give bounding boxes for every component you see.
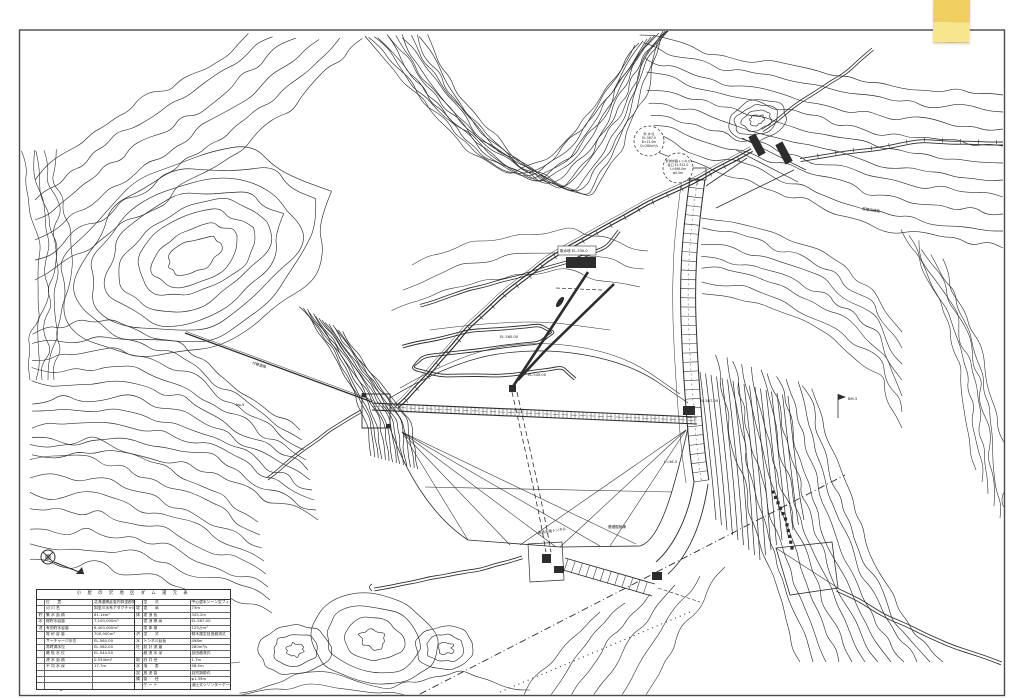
table-cell xyxy=(37,600,45,605)
table-cell: 備 xyxy=(135,677,143,682)
table-cell: 河 川 名 xyxy=(45,606,93,611)
table-cell xyxy=(45,683,93,688)
table-cell xyxy=(37,639,45,644)
plan-label: EL.567.00 xyxy=(700,399,719,403)
plan-label: 基礎掘削線 xyxy=(608,524,626,529)
callout-text: Q=280m³/s xyxy=(640,144,658,148)
table-cell: 平 均 水 深 xyxy=(45,664,93,669)
table-cell: 1.7m xyxy=(191,658,232,663)
table-cell: 0.534km² xyxy=(93,658,134,663)
table-cell xyxy=(135,626,143,631)
table-cell: 水 xyxy=(135,639,143,644)
table-cell: 吐 xyxy=(135,645,143,650)
table-cell: EL.544.50 xyxy=(93,651,134,656)
table-cell: 堤 頂 長 xyxy=(143,613,191,618)
spec-table: 小 屋 の 沢 地 区 ダ ム 諸 元 表 位 置北海道網走管内斜里郡斜里町河 … xyxy=(36,589,231,690)
table-cell: 堤 頂 標 高 xyxy=(143,619,191,624)
plan-label: BM.3 xyxy=(848,397,857,401)
table-cell: 700,000m³ xyxy=(93,632,134,637)
table-cell xyxy=(37,664,45,669)
table-cell: EL.564.00 xyxy=(93,639,134,644)
table-cell: 最 低 水 位 xyxy=(45,651,93,656)
spillway xyxy=(656,133,806,574)
table-cell: 側水路型自由越流式 xyxy=(191,632,232,637)
table-row xyxy=(37,683,134,688)
table-cell: 水 xyxy=(135,664,143,669)
table-cell: 設 xyxy=(135,671,143,676)
table-cell: ゲ ー ト xyxy=(143,683,191,688)
table-row: ゲ ー ト油圧式シリンダーゲート xyxy=(135,683,232,688)
table-cell xyxy=(37,671,45,676)
table-cell: 斜里川水系アタクチャ川 xyxy=(93,606,134,611)
table-cell: 常時満水位 xyxy=(45,645,93,650)
plan-label: No.5 xyxy=(236,403,244,407)
table-cell xyxy=(37,645,45,650)
scanned-drawing-sheet: 洪 水 吐EL.567.0B=12.0mQ=280m³/s仮排水路トンネル呑口 … xyxy=(0,0,1024,698)
table-cell: 油圧式シリンダーゲート xyxy=(191,683,232,688)
table-cell: 設 計 流 量 xyxy=(143,645,191,650)
table-cell xyxy=(37,606,45,611)
table-cell xyxy=(37,658,45,663)
table-cell: 総貯水容量 xyxy=(45,619,93,624)
compass-icon xyxy=(43,552,84,574)
table-cell: 放 流 管 xyxy=(143,671,191,676)
table-cell xyxy=(93,671,134,676)
outlet-works xyxy=(528,542,700,602)
table-cell: 58.5m xyxy=(191,664,232,669)
table-cell: 呑 口 径 xyxy=(143,658,191,663)
table-cell: 自由越流式 xyxy=(191,651,232,656)
table-cell xyxy=(37,677,45,682)
table-cell: 取 xyxy=(135,658,143,663)
table-cell: 堤 xyxy=(135,606,143,611)
table-cell xyxy=(135,683,143,688)
table-cell: 型 式 xyxy=(143,632,191,637)
table-cell xyxy=(93,683,134,688)
intake-penstock xyxy=(509,246,614,552)
plan-label: 取水塔 EL.530.0 xyxy=(560,248,588,253)
table-cell: 345.2m xyxy=(191,613,232,618)
table-cell: 280m³/s xyxy=(191,645,232,650)
plan-label: EL.545.00 xyxy=(528,373,547,377)
table-cell xyxy=(37,651,45,656)
table-cell: 堤 体 積 xyxy=(143,626,191,631)
table-cell: 17.7m xyxy=(93,664,134,669)
table-cell: 自然調節式 xyxy=(191,671,232,676)
sticky-tape xyxy=(933,0,971,43)
callout-text: φ4.5m xyxy=(673,171,683,175)
table-cell: 中心遮水ゾーン型フィルダム xyxy=(191,600,232,605)
table-cell: サーチャージ水位 xyxy=(45,639,93,644)
table-cell: 湛 水 面 積 xyxy=(45,658,93,663)
table-cell: 6,400,000m³ xyxy=(93,626,134,631)
table-cell: EL.562.00 xyxy=(93,645,134,650)
spec-table-left-half: 位 置北海道網走管内斜里郡斜里町河 川 名斜里川水系アタクチャ川貯集 水 面 積… xyxy=(37,600,134,689)
spec-table-title: 小 屋 の 沢 地 区 ダ ム 諸 元 表 xyxy=(37,590,230,600)
plan-label: L=36.3 xyxy=(664,460,677,464)
table-cell: 越 流 水 深 xyxy=(143,651,191,656)
table-cell xyxy=(93,677,134,682)
table-cell xyxy=(135,600,143,605)
plan-label: 管理用道路 xyxy=(862,206,881,214)
spec-table-right-half: 型 式中心遮水ゾーン型フィルダム堤堤 高73m体堤 頂 長345.2m堤 頂 標… xyxy=(134,600,232,689)
table-cell: EL.567.00 xyxy=(191,619,232,624)
plan-label: EL.560.00 xyxy=(500,335,519,339)
table-cell: 125万m³ xyxy=(191,626,232,631)
table-cell: 位 置 xyxy=(45,600,93,605)
table-cell: 型 式 xyxy=(143,600,191,605)
table-cell: 落 差 xyxy=(143,664,191,669)
spec-table-body: 位 置北海道網走管内斜里郡斜里町河 川 名斜里川水系アタクチャ川貯集 水 面 積… xyxy=(37,600,230,689)
table-cell: 7,100,000m³ xyxy=(93,619,134,624)
table-cell: φ1.35m xyxy=(191,677,232,682)
dam-crest xyxy=(362,393,697,428)
table-cell: 池 xyxy=(37,626,45,631)
table-cell: 貯 xyxy=(37,613,45,618)
table-cell: 水 xyxy=(37,619,45,624)
plan-label: 付替道路 xyxy=(252,360,268,369)
table-cell: 集 水 面 積 xyxy=(45,613,93,618)
table-cell xyxy=(135,619,143,624)
table-cell: 81.1km² xyxy=(93,613,134,618)
table-cell xyxy=(45,677,93,682)
table-cell: 有効貯水容量 xyxy=(45,626,93,631)
table-cell: 498m xyxy=(191,639,232,644)
table-cell: トンネル延長 xyxy=(143,639,191,644)
table-cell xyxy=(135,651,143,656)
table-cell: 体 xyxy=(135,613,143,618)
table-cell: 洪 xyxy=(135,632,143,637)
table-cell: 管 径 xyxy=(143,677,191,682)
table-cell xyxy=(37,683,45,688)
table-cell xyxy=(45,671,93,676)
table-cell: 堆 砂 容 量 xyxy=(45,632,93,637)
table-cell: 堤 高 xyxy=(143,606,191,611)
table-cell: 73m xyxy=(191,606,232,611)
table-cell: 北海道網走管内斜里郡斜里町 xyxy=(93,600,134,605)
table-cell xyxy=(37,632,45,637)
